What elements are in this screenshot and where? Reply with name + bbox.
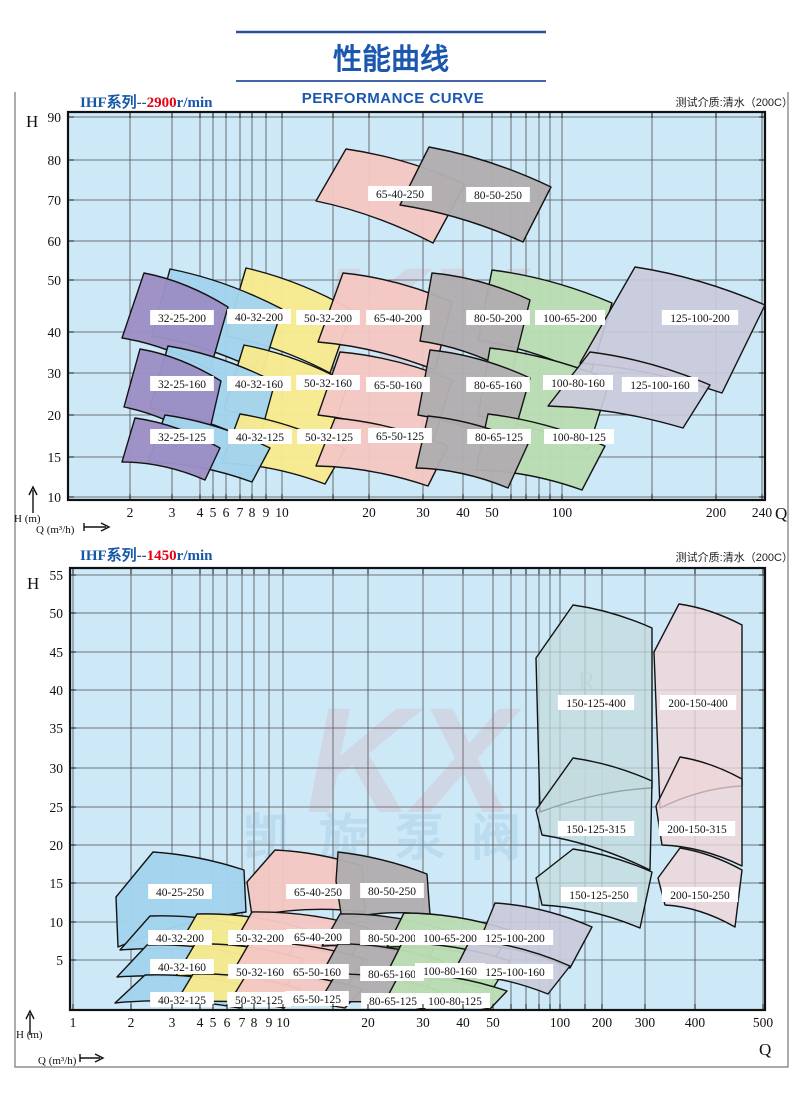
patch-label-125-100-200: 125-100-200 — [670, 313, 730, 325]
y-tick-label-35: 35 — [50, 721, 64, 736]
chart1-speed-unit: r/min — [177, 95, 213, 111]
x-tick-label-6: 6 — [223, 505, 230, 520]
patch-label-125-100-200: 125-100-200 — [485, 933, 545, 945]
page-title: 性能曲线 — [333, 43, 449, 76]
patch-label-50-32-160: 50-32-160 — [236, 967, 284, 979]
patch-label-40-32-160: 40-32-160 — [235, 379, 283, 391]
chart2-plot: KX凯旋泵阀R150-125-400200-150-400150-125-315… — [50, 568, 774, 1030]
patch-label-200-150-315: 200-150-315 — [667, 824, 727, 836]
patch-label-50-32-160: 50-32-160 — [304, 378, 352, 390]
patch-label-65-50-160: 65-50-160 — [293, 967, 341, 979]
patch-label-80-65-125: 80-65-125 — [475, 432, 523, 444]
x-tick-label-3: 3 — [169, 505, 176, 520]
chart2-series-prefix: IHF系列-- — [80, 546, 147, 564]
y-tick-label-10: 10 — [48, 490, 62, 505]
patch-label-150-125-400: 150-125-400 — [566, 698, 626, 710]
patch-label-50-32-200: 50-32-200 — [236, 933, 284, 945]
patch-label-40-32-200: 40-32-200 — [235, 312, 283, 324]
x-tick-label-300: 300 — [635, 1015, 656, 1030]
x-tick-label-200: 200 — [706, 505, 727, 520]
chart1-test-medium: 测试介质:清水（200C） — [676, 96, 793, 109]
y-tick-label-55: 55 — [50, 568, 64, 583]
y-tick-label-10: 10 — [50, 915, 64, 930]
x-tick-label-50: 50 — [486, 1015, 500, 1030]
patch-label-40-32-125: 40-32-125 — [236, 432, 284, 444]
patch-label-100-80-160: 100-80-160 — [423, 966, 477, 978]
y-tick-label-25: 25 — [50, 800, 64, 815]
x-tick-label-2: 2 — [128, 1015, 135, 1030]
patch-label-100-80-160: 100-80-160 — [551, 378, 605, 390]
y-tick-label-50: 50 — [50, 606, 64, 621]
y-tick-label-80: 80 — [48, 153, 62, 168]
patch-label-80-50-250: 80-50-250 — [474, 190, 522, 202]
chart2-y-axis-letter: H — [27, 574, 39, 593]
x-tick-label-3: 3 — [169, 1015, 176, 1030]
x-tick-label-240: 240 — [752, 505, 773, 520]
x-tick-label-4: 4 — [197, 1015, 204, 1030]
x-tick-label-30: 30 — [416, 505, 430, 520]
patch-label-65-50-125: 65-50-125 — [293, 994, 341, 1006]
x-tick-label-100: 100 — [552, 505, 573, 520]
patch-label-150-125-315: 150-125-315 — [566, 824, 626, 836]
chart1-q-right-arrow — [84, 523, 109, 531]
x-tick-label-8: 8 — [249, 505, 256, 520]
chart2-q-right-arrow — [80, 1054, 103, 1062]
y-tick-label-50: 50 — [48, 273, 62, 288]
patch-label-65-40-250: 65-40-250 — [294, 887, 342, 899]
chart2-test-medium: 测试介质:清水（200C） — [676, 551, 793, 564]
patch-label-65-40-200: 65-40-200 — [374, 313, 422, 325]
y-tick-label-5: 5 — [56, 953, 63, 968]
patch-label-100-80-125: 100-80-125 — [428, 996, 482, 1008]
patch-label-100-65-200: 100-65-200 — [423, 933, 477, 945]
patch-label-125-100-160: 125-100-160 — [630, 380, 690, 392]
x-tick-label-100: 100 — [550, 1015, 571, 1030]
x-tick-label-10: 10 — [275, 505, 289, 520]
y-tick-label-45: 45 — [50, 645, 64, 660]
x-tick-label-10: 10 — [276, 1015, 290, 1030]
y-tick-label-20: 20 — [50, 838, 64, 853]
chart1-series-title: IHF系列--2900r/min — [80, 93, 213, 111]
patch-label-80-50-200: 80-50-200 — [474, 313, 522, 325]
x-tick-label-8: 8 — [251, 1015, 258, 1030]
x-tick-label-400: 400 — [685, 1015, 706, 1030]
patch-label-200-150-400: 200-150-400 — [668, 698, 728, 710]
patch-label-65-40-200: 65-40-200 — [294, 932, 342, 944]
patch-label-200-150-250: 200-150-250 — [670, 890, 730, 902]
performance-curve-sheet: 性能曲线 PERFORMANCE CURVE IHF系列--2900r/min … — [0, 0, 800, 1098]
patch-label-40-32-160: 40-32-160 — [158, 962, 206, 974]
x-tick-label-5: 5 — [210, 1015, 217, 1030]
page-subtitle: PERFORMANCE CURVE — [302, 90, 484, 107]
x-tick-label-9: 9 — [263, 505, 270, 520]
x-tick-label-500: 500 — [753, 1015, 774, 1030]
chart1-plot: KX凯旋泵阀65-40-25080-50-25050-32-20040-32-2… — [48, 110, 773, 520]
y-tick-label-30: 30 — [50, 761, 64, 776]
x-tick-label-40: 40 — [456, 505, 470, 520]
patch-label-80-50-200: 80-50-200 — [368, 933, 416, 945]
y-tick-label-15: 15 — [48, 450, 62, 465]
x-tick-label-7: 7 — [239, 1015, 246, 1030]
patch-label-125-100-160: 125-100-160 — [485, 967, 545, 979]
chart1-x-unit: Q (m³/h) — [36, 524, 75, 536]
patch-label-50-32-200: 50-32-200 — [304, 313, 352, 325]
patch-label-100-65-200: 100-65-200 — [543, 313, 597, 325]
chart1-h-up-arrow — [29, 487, 37, 513]
patch-label-32-25-125: 32-25-125 — [158, 432, 206, 444]
patch-label-32-25-200: 32-25-200 — [158, 313, 206, 325]
x-tick-label-20: 20 — [361, 1015, 375, 1030]
patch-label-32-25-160: 32-25-160 — [158, 379, 206, 391]
patch-label-40-32-200: 40-32-200 — [156, 933, 204, 945]
x-tick-label-1: 1 — [70, 1015, 77, 1030]
x-tick-label-50: 50 — [485, 505, 499, 520]
y-tick-label-40: 40 — [48, 325, 62, 340]
y-tick-label-30: 30 — [48, 366, 62, 381]
y-tick-label-20: 20 — [48, 408, 62, 423]
x-tick-label-20: 20 — [362, 505, 376, 520]
chart1-y-axis-letter: H — [26, 112, 38, 131]
patch-label-40-25-250: 40-25-250 — [156, 887, 204, 899]
patch-label-150-125-250: 150-125-250 — [569, 890, 629, 902]
x-tick-label-40: 40 — [456, 1015, 470, 1030]
patch-label-65-40-250: 65-40-250 — [376, 189, 424, 201]
patch-label-80-65-125: 80-65-125 — [369, 996, 417, 1008]
chart2-speed-unit: r/min — [177, 548, 213, 564]
y-tick-label-15: 15 — [50, 876, 64, 891]
x-tick-label-4: 4 — [197, 505, 204, 520]
chart1-series-prefix: IHF系列-- — [80, 93, 147, 111]
x-tick-label-5: 5 — [210, 505, 217, 520]
patch-label-80-65-160: 80-65-160 — [368, 969, 416, 981]
y-tick-label-60: 60 — [48, 234, 62, 249]
chart1-x-axis-letter: Q — [775, 504, 787, 523]
x-tick-label-7: 7 — [237, 505, 244, 520]
patch-label-100-80-125: 100-80-125 — [552, 432, 606, 444]
chart2-x-unit: Q (m³/h) — [38, 1055, 77, 1067]
patch-label-80-50-250: 80-50-250 — [368, 886, 416, 898]
x-tick-label-9: 9 — [266, 1015, 273, 1030]
y-tick-label-40: 40 — [50, 683, 64, 698]
x-tick-label-6: 6 — [224, 1015, 231, 1030]
patch-label-65-50-160: 65-50-160 — [374, 380, 422, 392]
chart2-speed: 1450 — [147, 548, 177, 564]
chart1-speed: 2900 — [147, 95, 177, 111]
x-tick-label-200: 200 — [592, 1015, 613, 1030]
x-tick-label-2: 2 — [127, 505, 134, 520]
patch-label-40-32-125: 40-32-125 — [158, 995, 206, 1007]
chart2-x-axis-letter: Q — [759, 1040, 771, 1059]
x-tick-label-30: 30 — [416, 1015, 430, 1030]
y-tick-label-70: 70 — [48, 193, 62, 208]
patch-label-80-65-160: 80-65-160 — [474, 380, 522, 392]
chart2-series-title: IHF系列--1450r/min — [80, 546, 213, 564]
patch-label-50-32-125: 50-32-125 — [305, 432, 353, 444]
y-tick-label-90: 90 — [48, 110, 62, 125]
patch-label-65-50-125: 65-50-125 — [376, 431, 424, 443]
